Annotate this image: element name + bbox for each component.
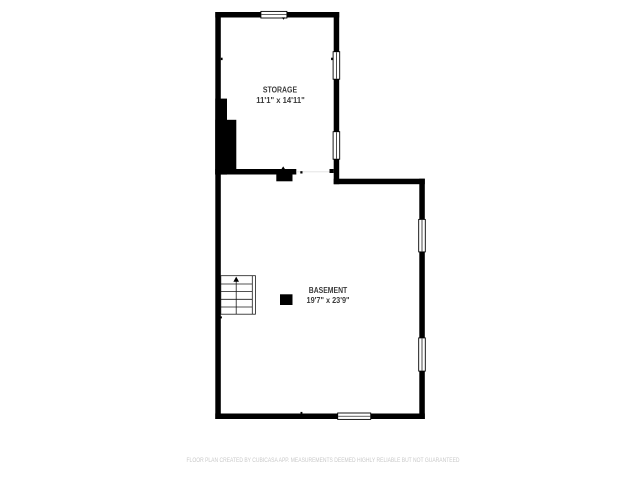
svg-text:BASEMENT: BASEMENT: [309, 286, 348, 295]
svg-text:FLOOR PLAN CREATED BY CUBICASA: FLOOR PLAN CREATED BY CUBICASA APP. MEAS…: [187, 457, 460, 464]
svg-text:11'1" x 14'11": 11'1" x 14'11": [256, 96, 305, 105]
svg-text:STORAGE: STORAGE: [263, 86, 298, 95]
svg-text:19'7" x 23'9": 19'7" x 23'9": [307, 296, 350, 305]
